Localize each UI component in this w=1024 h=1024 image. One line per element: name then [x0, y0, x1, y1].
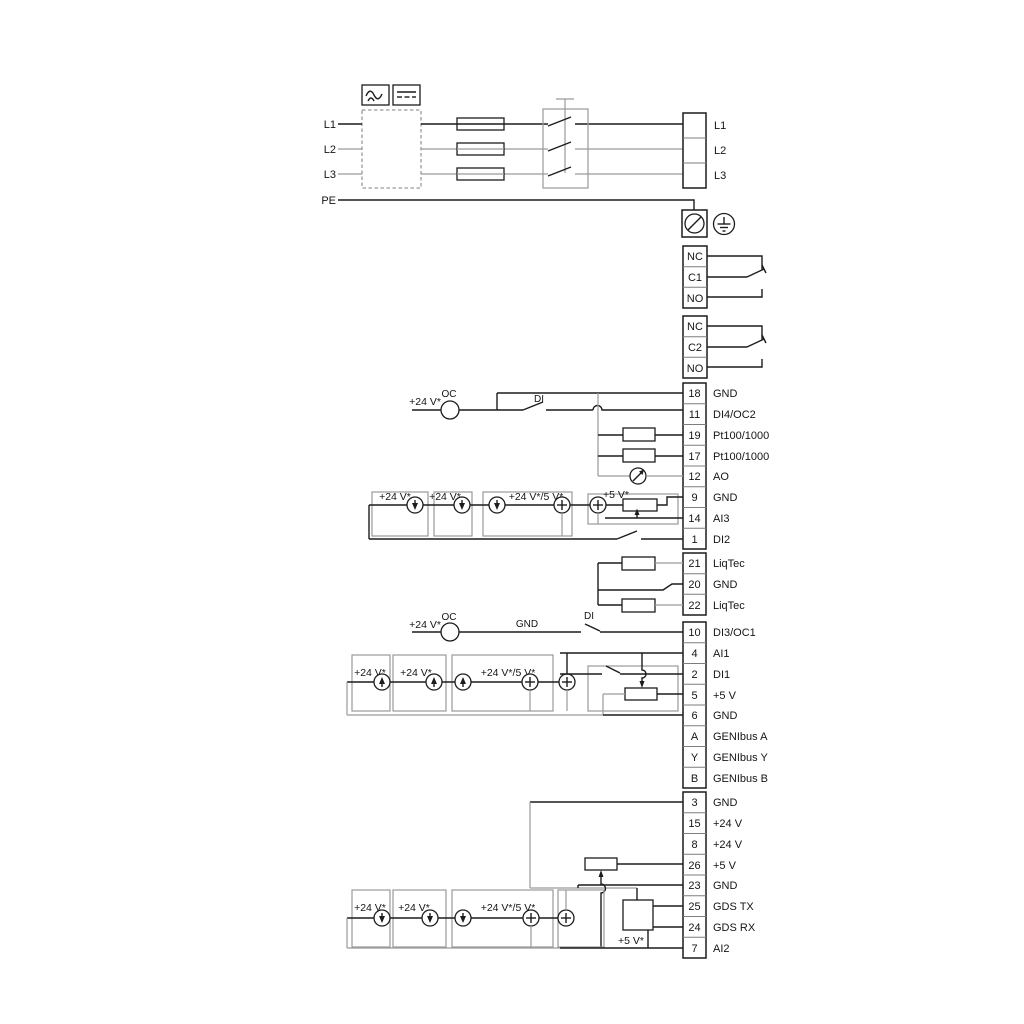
terminal-number: 26: [688, 860, 700, 872]
label-pe-in: PE: [321, 195, 336, 207]
terminal-label: +5 V: [713, 860, 737, 872]
pe-terminal-icon: [682, 210, 707, 237]
terminal-number: 6: [691, 710, 697, 722]
terminal-number: 23: [688, 880, 700, 892]
terminal-group-1: 18 11 19 17 12 9 14 1 GND DI4/OC2 Pt100/…: [683, 383, 769, 549]
v24-label: +24 V*: [409, 396, 441, 408]
terminal-label: GDS TX: [713, 901, 754, 913]
terminal-label: GND: [713, 388, 738, 400]
terminal-number: 7: [691, 943, 697, 955]
terminal-group-2: 21 20 22 LiqTec GND LiqTec: [598, 553, 745, 615]
label-l2-out: L2: [714, 145, 726, 157]
relay2-c2: C2: [688, 342, 702, 354]
pe-wire: [338, 200, 694, 210]
oc-label: OC: [442, 389, 457, 400]
mains-output-terminal-block: L1 L2 L3: [683, 113, 726, 188]
terminal-label: AI1: [713, 648, 730, 660]
terminal-label: AI2: [713, 943, 730, 955]
relay2-terminal-block: NC C2 NO: [683, 316, 766, 378]
relay1-nc: NC: [687, 251, 703, 263]
terminal-label: +24 V: [713, 818, 743, 830]
terminal-label: DI2: [713, 534, 730, 546]
terminal-label: AI3: [713, 513, 730, 525]
relay2-no: NO: [687, 363, 704, 375]
v24-label: +24 V*: [379, 491, 411, 503]
terminal-number: 15: [688, 818, 700, 830]
disconnect-switch-icon: [543, 99, 588, 188]
v5-label: +5 V*: [618, 935, 644, 947]
v24-label: +24 V*: [409, 619, 441, 631]
terminal-label: Pt100/1000: [713, 430, 769, 442]
terminal-number: 10: [688, 627, 700, 639]
gnd-label: GND: [516, 619, 538, 630]
oc-label: OC: [442, 612, 457, 623]
t4-circuitry: +5 V* +24 V* +24 V* +24 V*/5 V*: [347, 802, 683, 948]
terminal-label: GND: [713, 797, 738, 809]
terminal-label: GND: [713, 579, 738, 591]
terminal-number: Y: [691, 752, 699, 764]
terminal-group-3: 10 4 2 5 6 A Y B DI3/OC1 AI1 DI1 +5 V GN…: [683, 622, 768, 788]
terminal-label: GND: [713, 710, 738, 722]
terminal-label: DI3/OC1: [713, 627, 756, 639]
t1-circuitry: DI +24 V* OC +24 V* +24 V* +24 V*/5 V* +…: [369, 389, 683, 539]
potentiometer-icon: [623, 499, 657, 511]
pt100-resistor-icon: [623, 449, 655, 462]
terminal-label: GENIbus B: [713, 773, 768, 785]
terminal-number: 11: [689, 409, 700, 421]
terminal-number: 17: [688, 451, 700, 463]
terminal-number: 19: [688, 430, 700, 442]
label-l2-in: L2: [324, 144, 336, 156]
label-l1-out: L1: [714, 120, 726, 132]
phase-wires: [338, 124, 694, 210]
liqtec-sensor-wiring: [598, 557, 683, 612]
disconnect-blades: [548, 117, 571, 176]
relay1-terminal-block: NC C1 NO: [683, 246, 766, 308]
label-l3-in: L3: [324, 169, 336, 181]
terminal-label: AO: [713, 471, 729, 483]
terminal-number: 4: [691, 648, 697, 660]
terminal-number: A: [691, 731, 699, 743]
diagram-svg: L1 L2 L3 PE: [0, 0, 1024, 1024]
terminal-number: 3: [691, 797, 697, 809]
terminal-label: GDS RX: [713, 922, 756, 934]
terminal-label: GND: [713, 880, 738, 892]
label-l1-in: L1: [324, 119, 336, 131]
terminal-number: 5: [691, 690, 697, 702]
pt100-resistor-icon: [623, 428, 655, 441]
relay2-nc: NC: [687, 321, 703, 333]
terminal-label: DI1: [713, 669, 730, 681]
fuse-icons: [457, 118, 504, 180]
potentiometer-icon: [625, 688, 657, 700]
terminal-label: GENIbus A: [713, 731, 768, 743]
dc-line-icon: [393, 85, 420, 105]
earth-ground-icon: [714, 214, 735, 235]
terminal-number: 24: [688, 922, 700, 934]
relay1-no: NO: [687, 293, 704, 305]
relay1-c1: C1: [688, 272, 702, 284]
gds-sensor-box: [623, 900, 653, 930]
power-input-labels: L1 L2 L3 PE: [321, 119, 336, 207]
terminal-number: 1: [691, 534, 697, 546]
relay2-contact: [707, 326, 766, 367]
terminal-block: [683, 113, 706, 188]
di-label: DI: [584, 611, 594, 622]
liqtec-resistor-icon: [622, 599, 655, 612]
open-collector-icon: [441, 623, 459, 641]
terminal-number: 21: [688, 558, 700, 570]
terminal-number: 18: [688, 388, 700, 400]
terminal-label: DI4/OC2: [713, 409, 756, 421]
terminal-number: 9: [691, 492, 697, 504]
terminal-number: 12: [688, 471, 700, 483]
terminal-label: LiqTec: [713, 600, 745, 612]
terminal-number: 8: [691, 839, 697, 851]
terminal-number: 22: [688, 600, 700, 612]
terminal-label: GENIbus Y: [713, 752, 768, 764]
terminal-label: Pt100/1000: [713, 451, 769, 463]
terminal-group-4: 3 15 8 26 23 25 24 7 GND +24 V +24 V +5 …: [683, 792, 756, 958]
terminal-number: 14: [688, 513, 700, 525]
filter-symbol-boxes: [362, 85, 420, 105]
terminal-number: 25: [688, 901, 700, 913]
terminal-number: 20: [688, 579, 700, 591]
open-collector-icon: [441, 401, 459, 419]
terminal-label: +5 V: [713, 690, 737, 702]
liqtec-resistor-icon: [622, 557, 655, 570]
terminal-label: +24 V: [713, 839, 743, 851]
relay1-contact: [707, 256, 766, 297]
t3-circuitry: +24 V* OC GND DI +24 V* +24 V* +24 V*/5 …: [347, 611, 683, 715]
wiring-diagram: L1 L2 L3 PE: [0, 0, 1024, 1024]
terminal-number: B: [691, 773, 698, 785]
potentiometer-icon: [585, 858, 617, 870]
terminal-label: GND: [713, 492, 738, 504]
label-l3-out: L3: [714, 170, 726, 182]
terminal-number: 2: [691, 669, 697, 681]
rcd-filter-box: [362, 110, 421, 188]
terminal-label: LiqTec: [713, 558, 745, 570]
